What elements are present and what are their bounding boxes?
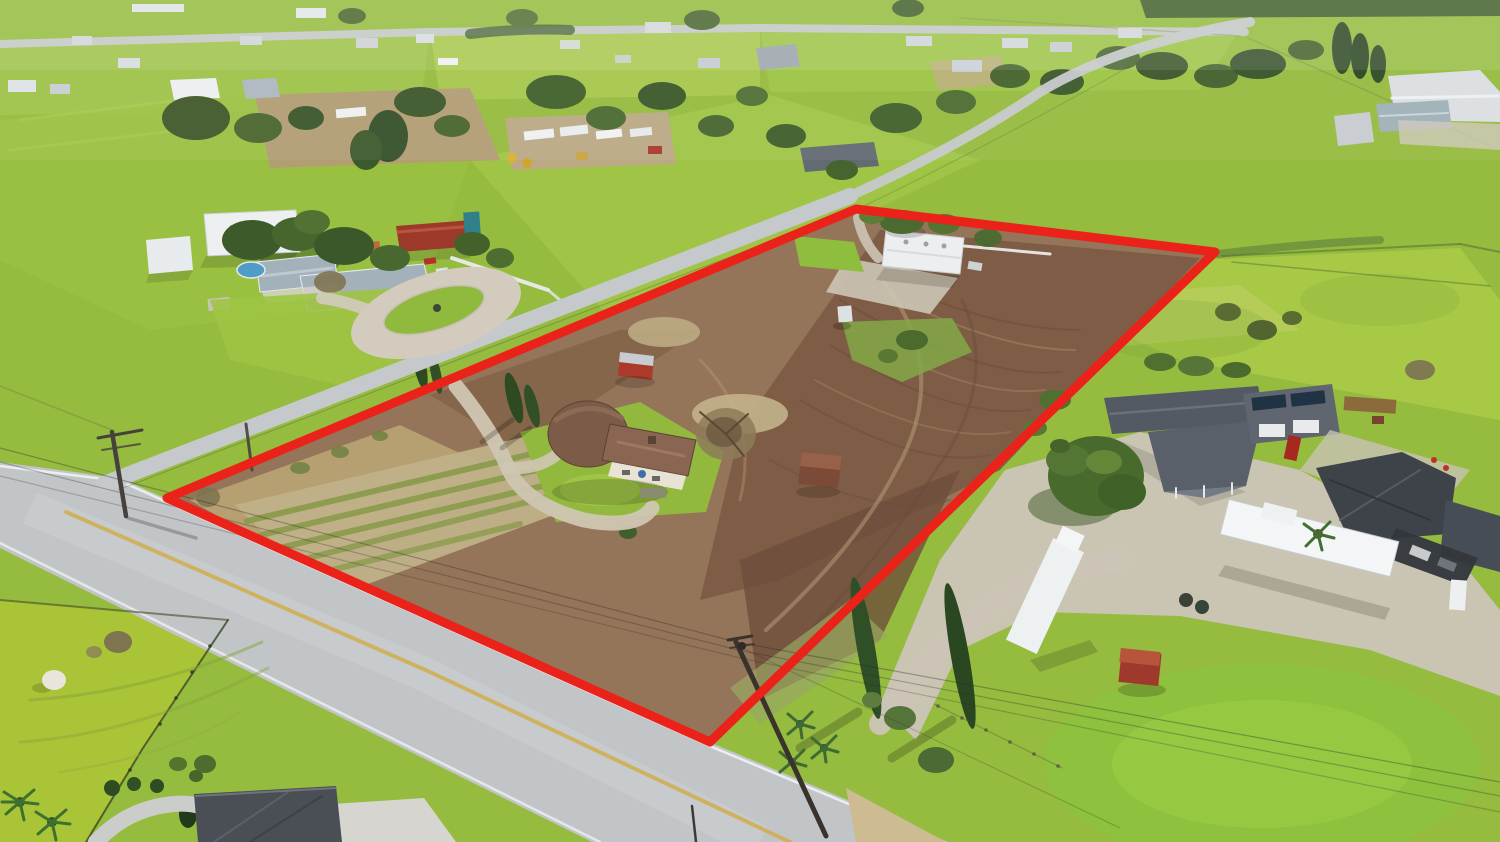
swimming-pool	[237, 262, 265, 278]
round-bush	[104, 780, 120, 796]
round-bush	[150, 779, 164, 793]
aerial-property-photo	[0, 0, 1500, 842]
tree	[974, 229, 1002, 247]
chimney	[648, 436, 656, 444]
tree	[222, 220, 282, 260]
tree	[826, 160, 858, 180]
blue-tarp	[638, 470, 646, 478]
light-patch	[628, 317, 700, 347]
big-tree-lobe	[1098, 474, 1146, 510]
tree	[294, 210, 330, 234]
pump-house	[837, 305, 852, 322]
haze-near	[0, 0, 1500, 160]
tree	[486, 248, 514, 268]
atmosphere	[0, 0, 1500, 160]
garage-door	[1293, 420, 1319, 433]
big-tree-highlight	[1086, 450, 1122, 474]
bare-tree	[314, 271, 346, 293]
pump-shadow	[833, 322, 851, 330]
patch-bush	[896, 330, 928, 350]
bare-tree-at-corner	[196, 487, 220, 507]
roof-vent	[924, 242, 929, 247]
orchard-bush	[1144, 353, 1176, 371]
roof-vent	[942, 244, 947, 249]
olive-tree	[862, 692, 882, 708]
window	[622, 470, 630, 475]
trash-bin	[1195, 600, 1209, 614]
aerial-scene-svg	[0, 0, 1500, 842]
white-car	[1449, 579, 1467, 610]
garage-door	[1259, 424, 1285, 437]
fence-post	[174, 696, 178, 700]
fence-post	[158, 722, 162, 726]
tree	[454, 232, 490, 256]
bare-tree	[86, 646, 102, 658]
round-bush	[127, 777, 141, 791]
shed-shadow	[796, 486, 840, 498]
blossom-tree	[42, 670, 66, 690]
pasture-mottle-2	[1300, 274, 1460, 326]
scrub-bush	[331, 446, 349, 458]
fence-post	[1032, 752, 1036, 756]
red-shed-shadow	[1118, 683, 1166, 697]
pasture-scrub	[1282, 311, 1302, 325]
roof-flag	[1443, 465, 1449, 471]
fence-post	[1008, 740, 1012, 744]
roof-vent	[904, 240, 909, 245]
deck-clutter	[640, 488, 666, 498]
quad-bike	[1372, 416, 1384, 424]
island-fountain	[433, 304, 441, 312]
trash-bin	[1179, 593, 1193, 607]
roof-flag	[1431, 457, 1437, 463]
patch-bush	[878, 349, 898, 363]
fence-post	[1056, 764, 1060, 768]
porch-roof	[1148, 420, 1262, 492]
boundary-shrub	[1050, 439, 1070, 453]
tree	[314, 227, 374, 265]
shrub	[169, 757, 187, 771]
fence-post	[208, 644, 212, 648]
window	[652, 476, 660, 481]
scrub-bush	[290, 462, 310, 474]
fence-post	[128, 768, 132, 772]
pasture-scrub	[1215, 303, 1241, 321]
solar-garage-roof	[1243, 384, 1340, 444]
barn-shed-shadow	[615, 376, 655, 388]
orchard-bush	[1178, 356, 1214, 376]
fence-post	[960, 716, 964, 720]
olive-tree	[918, 747, 954, 773]
bare-tree	[104, 631, 132, 653]
yard-tree	[194, 755, 216, 773]
fence-post	[936, 704, 940, 708]
scrub-bush	[372, 431, 388, 441]
tree	[370, 245, 410, 271]
fence-post	[984, 728, 988, 732]
pasture-scrub	[1247, 320, 1277, 340]
white-barn	[146, 236, 193, 274]
orchard-bush	[1221, 362, 1251, 378]
pole-transformer	[738, 642, 746, 650]
bare-tree	[1405, 360, 1435, 380]
